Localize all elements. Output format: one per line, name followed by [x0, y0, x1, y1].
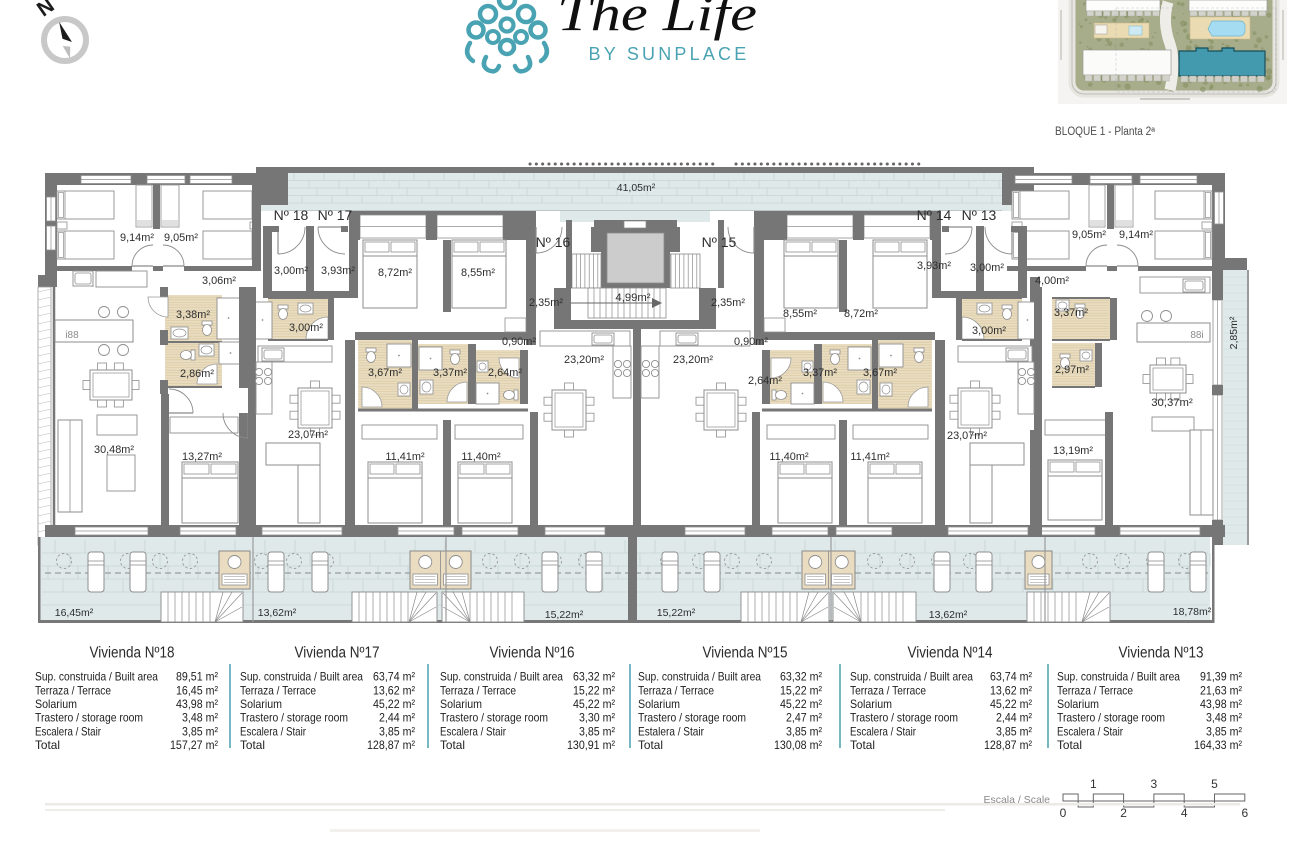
svg-text:Sup. construida / Built area: Sup. construida / Built area	[440, 670, 563, 684]
svg-text:21,63 m²: 21,63 m²	[1200, 683, 1242, 697]
svg-text:9,14m²: 9,14m²	[1119, 229, 1153, 241]
svg-text:16,45 m²: 16,45 m²	[176, 683, 218, 697]
svg-text:2,64m²: 2,64m²	[748, 375, 782, 387]
svg-text:2,64m²: 2,64m²	[488, 367, 522, 379]
svg-text:Vivienda Nº14: Vivienda Nº14	[908, 645, 993, 662]
svg-text:3,38m²: 3,38m²	[176, 309, 210, 321]
svg-text:63,32 m²: 63,32 m²	[573, 670, 615, 684]
svg-text:3,06m²: 3,06m²	[202, 275, 236, 287]
svg-text:Estalera / Stair: Estalera / Stair	[638, 724, 704, 738]
svg-text:Total: Total	[1057, 738, 1082, 752]
svg-text:Trastero / storage room: Trastero / storage room	[35, 711, 143, 725]
svg-text:13,62 m²: 13,62 m²	[373, 683, 415, 697]
svg-text:2,47 m²: 2,47 m²	[786, 711, 822, 725]
svg-text:3,48 m²: 3,48 m²	[1206, 711, 1242, 725]
svg-text:Vivienda Nº15: Vivienda Nº15	[703, 645, 788, 662]
svg-text:0,90m²: 0,90m²	[502, 336, 536, 348]
svg-text:3,00m²: 3,00m²	[970, 262, 1004, 274]
svg-text:128,87 m²: 128,87 m²	[984, 738, 1032, 752]
svg-text:0: 0	[1060, 806, 1067, 820]
svg-text:9,05m²: 9,05m²	[1072, 229, 1106, 241]
svg-text:5: 5	[1211, 777, 1218, 791]
svg-text:3,37m²: 3,37m²	[803, 367, 837, 379]
svg-text:8,55m²: 8,55m²	[783, 308, 817, 320]
svg-text:15,22m²: 15,22m²	[657, 607, 696, 619]
svg-text:Trastero / storage room: Trastero / storage room	[440, 711, 548, 725]
svg-text:30,48m²: 30,48m²	[94, 444, 134, 456]
svg-text:6: 6	[1241, 806, 1248, 820]
svg-text:3,37m²: 3,37m²	[1054, 307, 1088, 319]
svg-text:Total: Total	[638, 738, 663, 752]
svg-text:11,41m²: 11,41m²	[850, 451, 890, 463]
svg-text:BLOQUE 1 - Planta 2ª: BLOQUE 1 - Planta 2ª	[1055, 126, 1156, 138]
svg-text:130,91 m²: 130,91 m²	[567, 738, 615, 752]
svg-text:Escalera / Stair: Escalera / Stair	[1057, 724, 1123, 738]
svg-text:23,20m²: 23,20m²	[673, 354, 713, 366]
svg-text:BY SUNPLACE: BY SUNPLACE	[589, 44, 750, 64]
svg-text:13,62m²: 13,62m²	[929, 609, 968, 621]
svg-text:2,97m²: 2,97m²	[1055, 364, 1089, 376]
svg-text:Solarium: Solarium	[1057, 697, 1099, 711]
svg-text:Terraza / Terrace: Terraza / Terrace	[638, 683, 714, 697]
svg-text:Terraza / Terrace: Terraza / Terrace	[850, 683, 926, 697]
svg-text:23,07m²: 23,07m²	[288, 429, 328, 441]
svg-text:15,22 m²: 15,22 m²	[780, 683, 822, 697]
svg-text:3,67m²: 3,67m²	[863, 367, 897, 379]
svg-text:4,99m²: 4,99m²	[615, 292, 650, 304]
svg-text:2: 2	[1120, 806, 1127, 820]
svg-text:11,41m²: 11,41m²	[385, 451, 425, 463]
svg-text:2,86m²: 2,86m²	[180, 368, 214, 380]
svg-text:0,90m²: 0,90m²	[734, 336, 768, 348]
svg-text:Trastero / storage room: Trastero / storage room	[638, 711, 746, 725]
svg-text:Escalera / Stair: Escalera / Stair	[35, 724, 101, 738]
svg-text:Nº 14: Nº 14	[917, 207, 952, 223]
svg-text:Escalera / Stair: Escalera / Stair	[240, 724, 306, 738]
svg-text:Trastero / storage room: Trastero / storage room	[1057, 711, 1165, 725]
svg-text:88i: 88i	[1190, 330, 1203, 341]
svg-text:3,48 m²: 3,48 m²	[182, 711, 218, 725]
svg-text:Total: Total	[850, 738, 875, 752]
svg-text:Trastero / storage room: Trastero / storage room	[850, 711, 958, 725]
svg-text:9,14m²: 9,14m²	[120, 232, 154, 244]
svg-text:Escalera / Stair: Escalera / Stair	[850, 724, 916, 738]
svg-text:15,22m²: 15,22m²	[545, 609, 584, 621]
svg-text:41,05m²: 41,05m²	[617, 182, 656, 194]
svg-text:13,19m²: 13,19m²	[1053, 445, 1093, 457]
svg-text:2,85m²: 2,85m²	[1228, 316, 1240, 349]
svg-text:8,72m²: 8,72m²	[378, 267, 412, 279]
svg-text:63,74 m²: 63,74 m²	[373, 670, 415, 684]
svg-text:3: 3	[1151, 777, 1158, 791]
svg-text:Solarium: Solarium	[35, 697, 77, 711]
svg-text:Terraza / Terrace: Terraza / Terrace	[440, 683, 516, 697]
svg-text:91,39 m²: 91,39 m²	[1200, 670, 1242, 684]
svg-text:9,05m²: 9,05m²	[164, 232, 198, 244]
svg-text:13,62 m²: 13,62 m²	[990, 683, 1032, 697]
svg-text:2,35m²: 2,35m²	[711, 297, 745, 309]
svg-text:Nº 15: Nº 15	[702, 234, 737, 250]
svg-text:4: 4	[1181, 806, 1188, 820]
svg-text:Total: Total	[35, 738, 60, 752]
svg-text:43,98 m²: 43,98 m²	[176, 697, 218, 711]
svg-text:Nº 16: Nº 16	[536, 234, 571, 250]
svg-text:30,37m²: 30,37m²	[1151, 397, 1193, 409]
svg-text:23,07m²: 23,07m²	[947, 430, 987, 442]
svg-text:8,72m²: 8,72m²	[844, 308, 878, 320]
svg-text:Solarium: Solarium	[440, 697, 482, 711]
svg-text:The Life: The Life	[557, 0, 757, 41]
svg-text:Vivienda Nº13: Vivienda Nº13	[1119, 645, 1204, 662]
svg-text:1: 1	[1090, 777, 1097, 791]
svg-text:3,85 m²: 3,85 m²	[182, 724, 218, 738]
svg-text:157,27 m²: 157,27 m²	[170, 738, 218, 752]
svg-text:Terraza / Terrace: Terraza / Terrace	[35, 683, 111, 697]
svg-text:Terraza / Terrace: Terraza / Terrace	[240, 683, 316, 697]
svg-text:3,00m²: 3,00m²	[274, 265, 308, 277]
svg-text:Solarium: Solarium	[850, 697, 892, 711]
svg-text:Sup. construida / Built area: Sup. construida / Built area	[240, 670, 363, 684]
svg-text:Sup. construida / Built area: Sup. construida / Built area	[638, 670, 761, 684]
svg-text:2,44 m²: 2,44 m²	[996, 711, 1032, 725]
svg-text:Nº 17: Nº 17	[318, 207, 353, 223]
svg-text:130,08 m²: 130,08 m²	[774, 738, 822, 752]
svg-text:18,78m²: 18,78m²	[1173, 606, 1212, 618]
svg-text:11,40m²: 11,40m²	[461, 451, 501, 463]
svg-text:Sup. construida / Built area: Sup. construida / Built area	[850, 670, 973, 684]
svg-text:13,27m²: 13,27m²	[182, 451, 222, 463]
svg-text:15,22 m²: 15,22 m²	[573, 683, 615, 697]
svg-text:3,93m²: 3,93m²	[321, 265, 355, 277]
svg-text:45,22 m²: 45,22 m²	[373, 697, 415, 711]
svg-text:45,22 m²: 45,22 m²	[780, 697, 822, 711]
svg-text:11,40m²: 11,40m²	[769, 451, 809, 463]
svg-text:2,44 m²: 2,44 m²	[379, 711, 415, 725]
svg-text:Nº 18: Nº 18	[274, 207, 309, 223]
svg-text:Solarium: Solarium	[638, 697, 680, 711]
svg-text:63,32 m²: 63,32 m²	[780, 670, 822, 684]
svg-text:43,98 m²: 43,98 m²	[1200, 697, 1242, 711]
svg-text:3,00m²: 3,00m²	[289, 322, 323, 334]
svg-text:13,62m²: 13,62m²	[258, 607, 297, 619]
svg-text:4,00m²: 4,00m²	[1035, 275, 1069, 287]
svg-text:3,85 m²: 3,85 m²	[786, 724, 822, 738]
svg-text:45,22 m²: 45,22 m²	[990, 697, 1032, 711]
svg-text:i88: i88	[65, 330, 79, 341]
svg-text:3,93m²: 3,93m²	[917, 260, 951, 272]
svg-text:Trastero / storage room: Trastero / storage room	[240, 711, 348, 725]
svg-text:Sup. construida / Built area: Sup. construida / Built area	[1057, 670, 1180, 684]
svg-text:Sup. construida / Built area: Sup. construida / Built area	[35, 670, 158, 684]
svg-text:3,85 m²: 3,85 m²	[1206, 724, 1242, 738]
svg-text:Nº 13: Nº 13	[962, 207, 997, 223]
svg-text:Vivienda Nº17: Vivienda Nº17	[295, 645, 380, 662]
svg-text:Vivienda Nº16: Vivienda Nº16	[490, 645, 575, 662]
svg-text:16,45m²: 16,45m²	[55, 607, 94, 619]
svg-text:63,74 m²: 63,74 m²	[990, 670, 1032, 684]
svg-text:8,55m²: 8,55m²	[461, 267, 495, 279]
svg-text:Vivienda Nº18: Vivienda Nº18	[90, 645, 175, 662]
svg-text:3,85 m²: 3,85 m²	[579, 724, 615, 738]
svg-text:23,20m²: 23,20m²	[564, 354, 604, 366]
svg-text:Escalera / Stair: Escalera / Stair	[440, 724, 506, 738]
svg-text:Terraza / Terrace: Terraza / Terrace	[1057, 683, 1133, 697]
svg-text:89,51 m²: 89,51 m²	[176, 670, 218, 684]
svg-text:3,37m²: 3,37m²	[433, 367, 467, 379]
svg-text:2,35m²: 2,35m²	[529, 297, 563, 309]
svg-text:Solarium: Solarium	[240, 697, 282, 711]
svg-text:3,67m²: 3,67m²	[368, 367, 402, 379]
svg-text:Total: Total	[440, 738, 465, 752]
svg-text:3,30 m²: 3,30 m²	[579, 711, 615, 725]
svg-text:164,33 m²: 164,33 m²	[1194, 738, 1242, 752]
svg-text:45,22 m²: 45,22 m²	[573, 697, 615, 711]
svg-text:Total: Total	[240, 738, 265, 752]
svg-text:3,85 m²: 3,85 m²	[379, 724, 415, 738]
svg-text:128,87 m²: 128,87 m²	[367, 738, 415, 752]
svg-text:3,85 m²: 3,85 m²	[996, 724, 1032, 738]
svg-text:3,00m²: 3,00m²	[972, 325, 1006, 337]
